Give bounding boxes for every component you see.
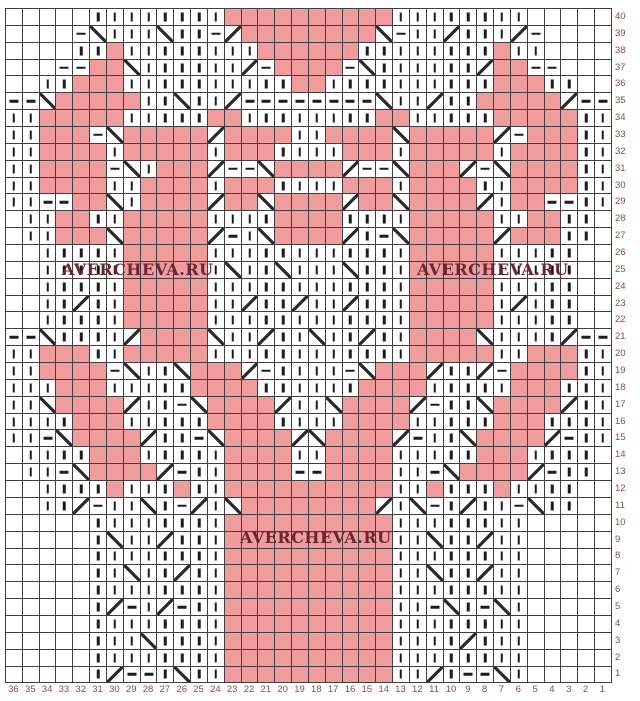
grid-cell (174, 397, 191, 414)
grid-cell (6, 26, 23, 43)
grid-cell (376, 582, 393, 599)
grid-cell (275, 93, 292, 110)
grid-cell (359, 565, 376, 582)
grid-cell (444, 363, 461, 380)
grid-cell (595, 329, 612, 346)
grid-cell (275, 262, 292, 279)
grid-cell (23, 430, 40, 447)
grid-cell (90, 650, 107, 667)
grid-cell (494, 363, 511, 380)
grid-cell (511, 161, 528, 178)
grid-cell (545, 464, 562, 481)
grid-cell (376, 161, 393, 178)
row-number-label: 12 (615, 480, 639, 497)
grid-cell (595, 667, 612, 684)
grid-cell (494, 397, 511, 414)
grid-cell (511, 498, 528, 515)
grid-cell (578, 93, 595, 110)
grid-cell (410, 93, 427, 110)
grid-cell (242, 127, 259, 144)
grid-cell (561, 363, 578, 380)
grid-cell (56, 397, 73, 414)
grid-cell (326, 211, 343, 228)
grid-cell (191, 9, 208, 26)
grid-cell (6, 110, 23, 127)
grid-cell (292, 616, 309, 633)
grid-cell (359, 582, 376, 599)
grid-cell (225, 279, 242, 296)
grid-cell (343, 380, 360, 397)
grid-cell (376, 549, 393, 566)
grid-cell (141, 515, 158, 532)
grid-cell (73, 194, 90, 211)
grid-cell (410, 582, 427, 599)
grid-cell (410, 532, 427, 549)
grid-cell (23, 481, 40, 498)
grid-cell (107, 9, 124, 26)
grid-cell (107, 565, 124, 582)
grid-cell (258, 60, 275, 77)
grid-cell (174, 110, 191, 127)
column-number-label: 5 (527, 684, 544, 695)
grid-cell (242, 464, 259, 481)
grid-cell (595, 312, 612, 329)
grid-cell (258, 650, 275, 667)
grid-cell (545, 93, 562, 110)
grid-cell (376, 447, 393, 464)
grid-cell (595, 228, 612, 245)
grid-cell (545, 346, 562, 363)
grid-cell (343, 161, 360, 178)
row-number-label: 29 (615, 193, 639, 210)
grid-cell (410, 43, 427, 60)
grid-cell (258, 346, 275, 363)
grid-cell (561, 211, 578, 228)
grid-cell (578, 329, 595, 346)
grid-cell (528, 296, 545, 313)
grid-cell (595, 296, 612, 313)
grid-cell (275, 430, 292, 447)
grid-cell (40, 363, 57, 380)
grid-cell (6, 650, 23, 667)
grid-cell (595, 76, 612, 93)
grid-cell (326, 279, 343, 296)
grid-cell (427, 144, 444, 161)
grid-cell (23, 650, 40, 667)
grid-cell (242, 481, 259, 498)
grid-cell (23, 380, 40, 397)
row-number-label: 39 (615, 25, 639, 42)
grid-cell (40, 296, 57, 313)
grid-cell (23, 397, 40, 414)
grid-cell (343, 262, 360, 279)
grid-cell (157, 599, 174, 616)
grid-cell (410, 515, 427, 532)
grid-cell (460, 211, 477, 228)
grid-cell (326, 633, 343, 650)
grid-cell (107, 93, 124, 110)
grid-cell (191, 296, 208, 313)
grid-cell (174, 650, 191, 667)
grid-cell (191, 633, 208, 650)
grid-cell (107, 481, 124, 498)
grid-cell (124, 110, 141, 127)
grid-cell (258, 329, 275, 346)
grid-cell (275, 178, 292, 195)
grid-cell (528, 228, 545, 245)
grid-cell (292, 93, 309, 110)
grid-cell (90, 9, 107, 26)
grid-cell (343, 599, 360, 616)
grid-cell (141, 296, 158, 313)
grid-cell (460, 363, 477, 380)
grid-cell (292, 245, 309, 262)
grid-cell (23, 515, 40, 532)
grid-cell (477, 633, 494, 650)
grid-cell (174, 178, 191, 195)
grid-cell (477, 582, 494, 599)
grid-cell (292, 549, 309, 566)
row-number-column: 4039383736353433323130292827262524232221… (615, 8, 639, 682)
grid-cell (343, 110, 360, 127)
grid-cell (141, 76, 158, 93)
grid-cell (40, 582, 57, 599)
grid-cell (477, 447, 494, 464)
grid-cell (174, 380, 191, 397)
grid-cell (242, 110, 259, 127)
grid-cell (410, 329, 427, 346)
grid-cell (208, 582, 225, 599)
grid-cell (208, 414, 225, 431)
grid-cell (208, 127, 225, 144)
grid-cell (460, 329, 477, 346)
grid-cell (6, 211, 23, 228)
grid-cell (56, 447, 73, 464)
grid-cell (174, 633, 191, 650)
grid-cell (275, 144, 292, 161)
grid-cell (275, 464, 292, 481)
grid-cell (393, 228, 410, 245)
grid-cell (208, 515, 225, 532)
grid-cell (561, 447, 578, 464)
grid-cell (376, 9, 393, 26)
grid-cell (427, 616, 444, 633)
grid-cell (427, 498, 444, 515)
grid-cell (511, 464, 528, 481)
grid-cell (528, 43, 545, 60)
grid-cell (141, 565, 158, 582)
grid-cell (73, 329, 90, 346)
grid-cell (141, 380, 158, 397)
grid-cell (23, 532, 40, 549)
grid-cell (258, 127, 275, 144)
grid-cell (393, 414, 410, 431)
grid-cell (545, 616, 562, 633)
grid-cell (309, 194, 326, 211)
grid-cell (545, 211, 562, 228)
grid-cell (477, 532, 494, 549)
grid-cell (477, 76, 494, 93)
grid-cell (427, 228, 444, 245)
grid-cell (494, 9, 511, 26)
grid-cell (258, 211, 275, 228)
grid-cell (40, 76, 57, 93)
grid-cell (460, 228, 477, 245)
grid-cell (511, 43, 528, 60)
grid-cell (56, 26, 73, 43)
grid-cell (359, 296, 376, 313)
grid-cell (23, 262, 40, 279)
grid-cell (444, 43, 461, 60)
grid-cell (6, 329, 23, 346)
grid-cell (528, 60, 545, 77)
grid-cell (444, 616, 461, 633)
row-number-label: 34 (615, 109, 639, 126)
grid-cell (141, 43, 158, 60)
grid-cell (258, 464, 275, 481)
grid-cell (528, 430, 545, 447)
grid-cell (56, 363, 73, 380)
grid-cell (343, 633, 360, 650)
grid-cell (242, 228, 259, 245)
grid-cell (107, 60, 124, 77)
grid-cell (309, 178, 326, 195)
column-number-label: 13 (392, 684, 409, 695)
grid-cell (595, 650, 612, 667)
grid-cell (23, 245, 40, 262)
grid-cell (427, 26, 444, 43)
grid-cell (6, 481, 23, 498)
grid-cell (561, 110, 578, 127)
grid-cell (376, 76, 393, 93)
grid-cell (90, 228, 107, 245)
grid-cell (242, 380, 259, 397)
grid-cell (578, 245, 595, 262)
grid-cell (208, 363, 225, 380)
grid-cell (578, 430, 595, 447)
grid-cell (275, 346, 292, 363)
grid-cell (174, 447, 191, 464)
column-number-row: 3635343332313029282726252423222120191817… (5, 684, 611, 695)
grid-cell (595, 346, 612, 363)
grid-cell (511, 228, 528, 245)
grid-cell (157, 414, 174, 431)
grid-cell (191, 599, 208, 616)
grid-cell (326, 296, 343, 313)
grid-cell (561, 127, 578, 144)
grid-cell (528, 650, 545, 667)
row-number-label: 5 (615, 598, 639, 615)
grid-cell (578, 312, 595, 329)
grid-cell (292, 110, 309, 127)
grid-cell (141, 144, 158, 161)
grid-cell (309, 582, 326, 599)
grid-cell (208, 397, 225, 414)
grid-cell (56, 279, 73, 296)
grid-cell (225, 178, 242, 195)
grid-cell (208, 60, 225, 77)
grid-cell (561, 380, 578, 397)
grid-cell (359, 60, 376, 77)
grid-cell (477, 380, 494, 397)
grid-cell (561, 582, 578, 599)
grid-cell (494, 565, 511, 582)
grid-cell (73, 127, 90, 144)
grid-cell (174, 296, 191, 313)
grid-cell (40, 279, 57, 296)
grid-cell (6, 515, 23, 532)
grid-cell (23, 93, 40, 110)
grid-cell (511, 279, 528, 296)
grid-cell (410, 144, 427, 161)
grid-cell (309, 565, 326, 582)
grid-cell (208, 161, 225, 178)
grid-cell (376, 43, 393, 60)
grid-cell (208, 481, 225, 498)
grid-cell (191, 312, 208, 329)
grid-cell (511, 26, 528, 43)
grid-cell (393, 481, 410, 498)
grid-cell (528, 464, 545, 481)
grid-cell (595, 60, 612, 77)
row-number-label: 22 (615, 311, 639, 328)
grid-cell (578, 363, 595, 380)
grid-cell (494, 498, 511, 515)
column-number-label: 9 (459, 684, 476, 695)
grid-cell (40, 464, 57, 481)
grid-cell (225, 599, 242, 616)
grid-cell (309, 498, 326, 515)
grid-cell (427, 481, 444, 498)
grid-cell (444, 532, 461, 549)
grid-cell (124, 228, 141, 245)
grid-cell (410, 380, 427, 397)
grid-cell (376, 464, 393, 481)
grid-cell (528, 616, 545, 633)
grid-cell (460, 9, 477, 26)
grid-cell (359, 447, 376, 464)
grid-cell (174, 582, 191, 599)
grid-cell (595, 380, 612, 397)
grid-cell (191, 481, 208, 498)
column-number-label: 30 (106, 684, 123, 695)
grid-cell (494, 515, 511, 532)
grid-cell (393, 532, 410, 549)
grid-cell (191, 532, 208, 549)
grid-cell (410, 464, 427, 481)
grid-cell (528, 498, 545, 515)
column-number-label: 23 (224, 684, 241, 695)
grid-cell (477, 228, 494, 245)
grid-cell (157, 380, 174, 397)
grid-cell (56, 549, 73, 566)
grid-cell (595, 194, 612, 211)
column-number-label: 4 (544, 684, 561, 695)
grid-cell (23, 346, 40, 363)
row-number-label: 23 (615, 295, 639, 312)
grid-cell (107, 447, 124, 464)
grid-cell (275, 329, 292, 346)
grid-cell (124, 549, 141, 566)
row-number-label: 38 (615, 42, 639, 59)
grid-cell (595, 93, 612, 110)
grid-cell (141, 211, 158, 228)
grid-cell (56, 329, 73, 346)
grid-cell (595, 363, 612, 380)
grid-cell (292, 279, 309, 296)
grid-cell (40, 93, 57, 110)
grid-cell (225, 76, 242, 93)
grid-cell (578, 667, 595, 684)
grid-cell (107, 633, 124, 650)
grid-cell (359, 549, 376, 566)
grid-cell (545, 380, 562, 397)
grid-cell (444, 26, 461, 43)
grid-cell (90, 464, 107, 481)
grid-cell (511, 667, 528, 684)
grid-cell (578, 127, 595, 144)
grid-cell (528, 380, 545, 397)
grid-cell (359, 26, 376, 43)
grid-cell (124, 26, 141, 43)
grid-cell (444, 296, 461, 313)
grid-cell (477, 346, 494, 363)
grid-cell (376, 616, 393, 633)
grid-cell (225, 633, 242, 650)
grid-cell (393, 346, 410, 363)
grid-cell (545, 161, 562, 178)
grid-cell (90, 363, 107, 380)
grid-cell (561, 144, 578, 161)
grid-cell (225, 43, 242, 60)
grid-cell (376, 346, 393, 363)
grid-cell (107, 532, 124, 549)
grid-cell (309, 60, 326, 77)
grid-cell (124, 279, 141, 296)
row-number-label: 27 (615, 227, 639, 244)
grid-cell (23, 178, 40, 195)
grid-cell (511, 178, 528, 195)
grid-cell (477, 26, 494, 43)
grid-cell (124, 312, 141, 329)
grid-cell (595, 515, 612, 532)
grid-cell (393, 549, 410, 566)
grid-cell (427, 582, 444, 599)
column-number-label: 36 (5, 684, 22, 695)
grid-cell (242, 616, 259, 633)
grid-cell (494, 414, 511, 431)
grid-cell (545, 228, 562, 245)
grid-cell (427, 667, 444, 684)
grid-cell (561, 498, 578, 515)
grid-cell (359, 397, 376, 414)
grid-cell (258, 397, 275, 414)
grid-cell (107, 161, 124, 178)
grid-cell (578, 599, 595, 616)
grid-cell (225, 498, 242, 515)
grid-cell (545, 498, 562, 515)
grid-cell (73, 380, 90, 397)
grid-cell (393, 667, 410, 684)
grid-cell (545, 532, 562, 549)
grid-cell (595, 464, 612, 481)
grid-cell (477, 144, 494, 161)
knitting-chart-page: 4039383736353433323130292827262524232221… (0, 0, 640, 701)
grid-cell (427, 380, 444, 397)
grid-cell (511, 329, 528, 346)
grid-cell (528, 312, 545, 329)
grid-cell (275, 194, 292, 211)
